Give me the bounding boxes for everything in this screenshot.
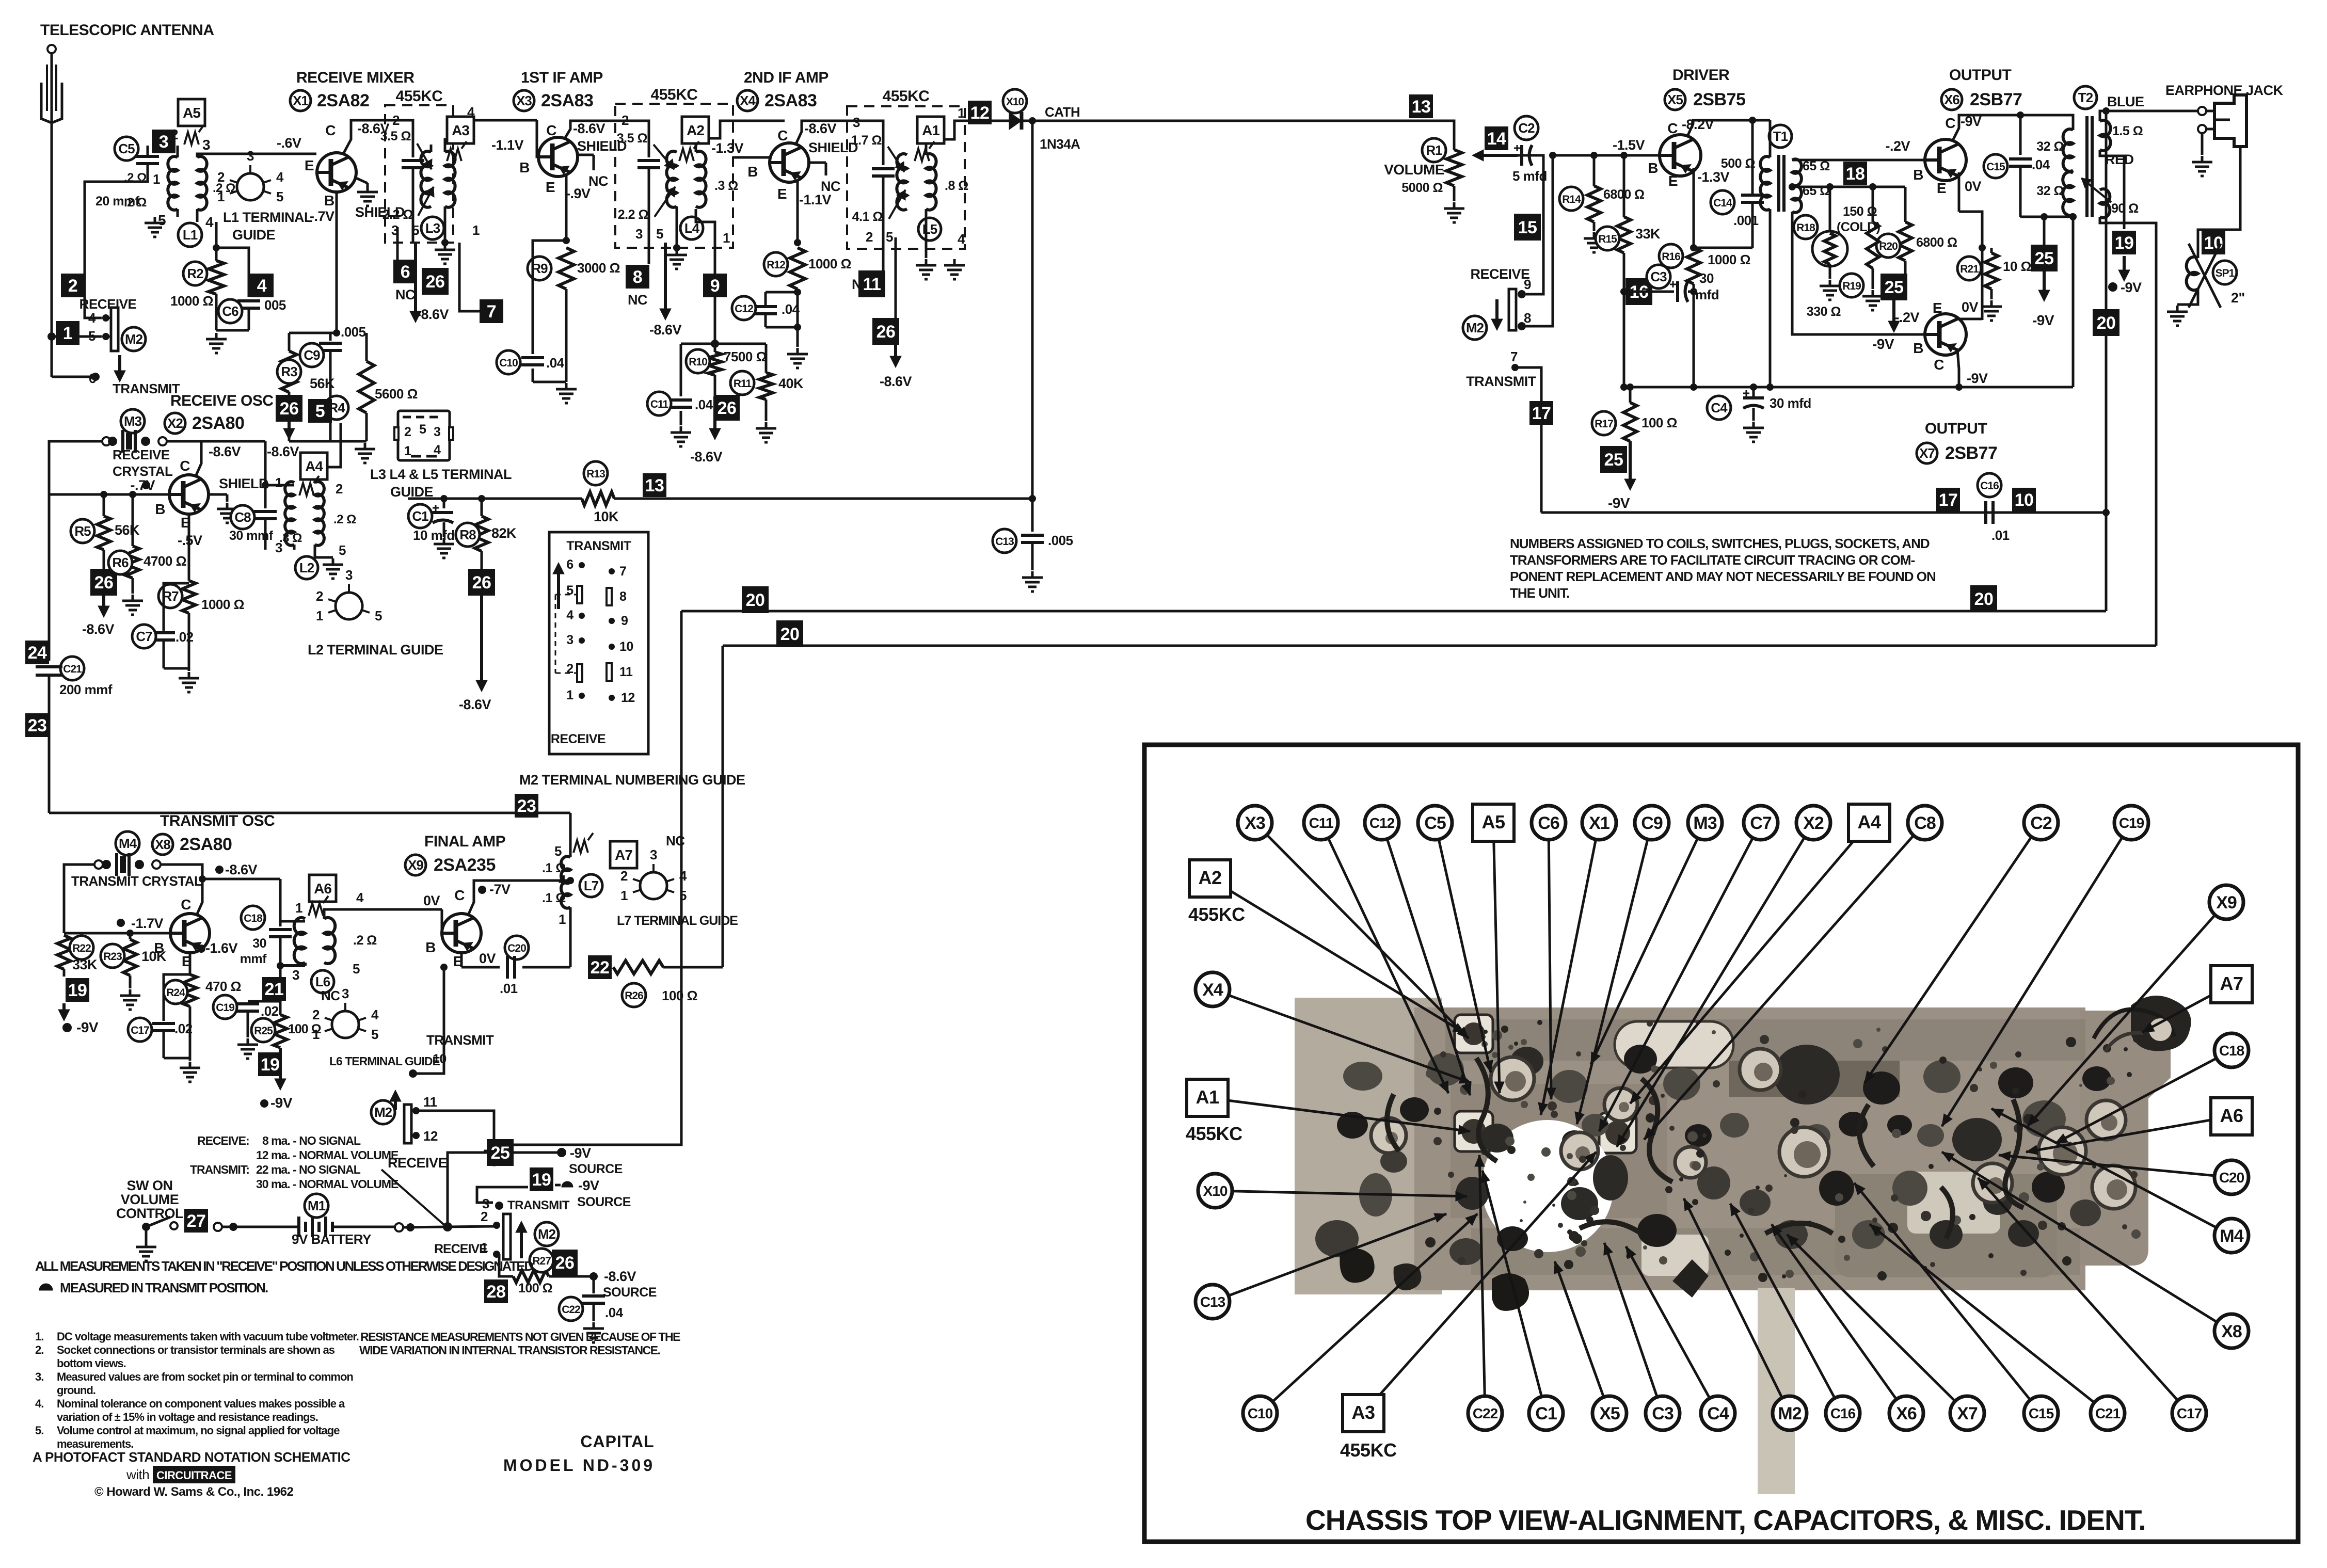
svg-text:X6: X6 — [1944, 92, 1959, 107]
svg-text:30 ma. - NORMAL VOLUME: 30 ma. - NORMAL VOLUME — [256, 1177, 399, 1191]
svg-text:C2: C2 — [1518, 120, 1535, 136]
svg-text:2SA83: 2SA83 — [541, 91, 593, 110]
svg-text:-.2V: -.2V — [1894, 310, 1919, 325]
svg-text:X4: X4 — [1202, 980, 1223, 1000]
svg-text:L2: L2 — [299, 560, 314, 575]
svg-text:-.6V: -.6V — [277, 135, 301, 151]
svg-text:-8.6V: -8.6V — [82, 621, 115, 637]
svg-text:C15: C15 — [2029, 1405, 2054, 1421]
svg-text:5: 5 — [276, 189, 283, 204]
svg-text:B: B — [1648, 160, 1658, 176]
svg-text:21: 21 — [265, 980, 284, 999]
svg-text:32 Ω: 32 Ω — [2036, 139, 2064, 154]
svg-text:-8.6V: -8.6V — [209, 444, 241, 459]
svg-text:10: 10 — [2015, 490, 2034, 510]
svg-text:-1.5V: -1.5V — [1613, 137, 1645, 153]
svg-text:100 Ω: 100 Ω — [662, 988, 697, 1003]
svg-text:3: 3 — [853, 115, 860, 130]
svg-text:A3: A3 — [1351, 1402, 1375, 1423]
svg-text:1.7 Ω: 1.7 Ω — [851, 133, 882, 148]
svg-text:Volume control at maximum, no: Volume control at maximum, no signal app… — [57, 1424, 340, 1437]
svg-text:6: 6 — [401, 262, 410, 282]
svg-text:-1.6V: -1.6V — [205, 940, 238, 956]
svg-text:10K: 10K — [594, 509, 619, 524]
svg-text:20: 20 — [1974, 589, 1994, 609]
svg-text:R12: R12 — [767, 259, 785, 271]
svg-text:1: 1 — [559, 911, 566, 927]
svg-text:3: 3 — [292, 967, 299, 983]
svg-text:1: 1 — [958, 105, 965, 121]
svg-text:R5: R5 — [74, 523, 91, 539]
svg-text:DRIVER: DRIVER — [1672, 67, 1730, 84]
svg-text:L1: L1 — [183, 227, 198, 243]
svg-text:GUIDE: GUIDE — [232, 227, 275, 243]
svg-text:C10: C10 — [1248, 1405, 1273, 1421]
svg-text:CIRCUITRACE: CIRCUITRACE — [156, 1469, 232, 1482]
svg-text:WIDE VARIATION IN INTERNAL TRA: WIDE VARIATION IN INTERNAL TRANSISTOR RE… — [359, 1343, 660, 1357]
svg-text:M2: M2 — [1466, 320, 1484, 335]
svg-text:.02: .02 — [176, 629, 194, 645]
svg-text:2ND IF AMP: 2ND IF AMP — [744, 69, 828, 86]
svg-text:10: 10 — [619, 639, 633, 654]
svg-text:C5: C5 — [118, 141, 135, 156]
svg-text:TRANSMIT: TRANSMIT — [566, 539, 631, 553]
svg-text:455KC: 455KC — [1186, 1123, 1242, 1144]
svg-text:19: 19 — [261, 1055, 280, 1075]
svg-text:1: 1 — [620, 888, 628, 903]
svg-text:E: E — [1937, 180, 1946, 196]
svg-text:R3: R3 — [281, 364, 297, 379]
svg-text:L3 L4 & L5 TERMINAL: L3 L4 & L5 TERMINAL — [370, 467, 512, 482]
svg-text:.3 Ω: .3 Ω — [714, 179, 738, 193]
svg-text:3: 3 — [202, 137, 210, 153]
svg-text:-8.6V: -8.6V — [804, 121, 837, 136]
svg-text:T2: T2 — [2078, 90, 2093, 105]
svg-text:C: C — [777, 127, 788, 143]
svg-text:NC: NC — [666, 833, 685, 849]
svg-text:1ST IF AMP: 1ST IF AMP — [521, 69, 603, 86]
svg-text:DC voltage measurements taken: DC voltage measurements taken with vacuu… — [57, 1330, 359, 1343]
svg-text:R20: R20 — [1879, 241, 1898, 252]
svg-text:30 mmf: 30 mmf — [229, 529, 274, 543]
svg-text:M4: M4 — [2220, 1226, 2243, 1246]
svg-text:8: 8 — [619, 589, 627, 604]
svg-text:X10: X10 — [1006, 96, 1024, 108]
svg-text:9: 9 — [710, 276, 720, 296]
svg-text:CRYSTAL: CRYSTAL — [113, 463, 173, 479]
svg-text:100 Ω: 100 Ω — [1641, 415, 1677, 430]
svg-text:5 mfd: 5 mfd — [1512, 168, 1547, 184]
svg-text:A2: A2 — [687, 122, 704, 138]
svg-text:6800 Ω: 6800 Ω — [1916, 235, 1957, 250]
svg-text:Socket connections or transist: Socket connections or transistor termina… — [57, 1343, 335, 1356]
svg-text:M2: M2 — [125, 331, 143, 347]
svg-text:1: 1 — [404, 444, 411, 458]
svg-text:R23: R23 — [103, 951, 122, 963]
svg-text:.01: .01 — [500, 981, 518, 996]
svg-text:-9V: -9V — [1967, 371, 1988, 386]
svg-text:M1: M1 — [308, 1198, 326, 1213]
svg-text:2SB75: 2SB75 — [1693, 90, 1745, 109]
svg-text:2.: 2. — [35, 1343, 43, 1356]
svg-text:R14: R14 — [1562, 194, 1581, 205]
svg-text:-8.6V: -8.6V — [880, 374, 912, 389]
svg-text:1: 1 — [217, 189, 225, 204]
svg-text:PONENT REPLACEMENT AND MAY NOT: PONENT REPLACEMENT AND MAY NOT NECESSARI… — [1510, 569, 1936, 584]
svg-text:33K: 33K — [72, 957, 98, 972]
svg-text:C9: C9 — [1641, 813, 1663, 833]
svg-text:C: C — [1667, 120, 1678, 136]
svg-text:R6: R6 — [112, 555, 129, 570]
svg-text:-9V: -9V — [1872, 336, 1894, 352]
svg-text:C12: C12 — [1369, 815, 1395, 831]
svg-text:A1: A1 — [922, 122, 939, 138]
svg-text:A4: A4 — [1857, 811, 1880, 833]
svg-text:TRANSFORMERS ARE TO FACILITATE: TRANSFORMERS ARE TO FACILITATE CIRCUIT T… — [1510, 552, 1915, 568]
svg-text:8: 8 — [1524, 310, 1531, 326]
svg-text:3000 Ω: 3000 Ω — [577, 260, 620, 276]
svg-text:X5: X5 — [1667, 92, 1683, 107]
svg-text:VOLUME: VOLUME — [1384, 162, 1444, 178]
svg-text:T1: T1 — [1773, 129, 1788, 144]
svg-text:C20: C20 — [2219, 1170, 2244, 1186]
svg-text:MODEL ND-309: MODEL ND-309 — [503, 1456, 655, 1475]
svg-text:3: 3 — [650, 847, 657, 862]
svg-text:C6: C6 — [222, 303, 238, 319]
svg-text:3: 3 — [342, 986, 349, 1001]
svg-text:RECEIVE: RECEIVE — [79, 296, 137, 312]
svg-text:26: 26 — [280, 399, 299, 419]
svg-text:-8.6V: -8.6V — [459, 697, 491, 712]
svg-text:9: 9 — [1524, 277, 1531, 292]
svg-text:X9: X9 — [2216, 893, 2237, 913]
svg-text:L3: L3 — [425, 220, 440, 236]
svg-text:14: 14 — [1487, 129, 1506, 149]
svg-text:CAPITAL: CAPITAL — [580, 1432, 654, 1451]
svg-text:5: 5 — [353, 961, 360, 977]
svg-text:9: 9 — [621, 614, 628, 628]
svg-text:C1: C1 — [1535, 1404, 1557, 1423]
svg-text:18: 18 — [1846, 164, 1865, 184]
svg-text:2: 2 — [312, 1007, 320, 1022]
svg-text:C21: C21 — [63, 663, 82, 675]
svg-text:-.2V: -.2V — [1885, 138, 1910, 154]
svg-text:C18: C18 — [2219, 1043, 2244, 1059]
svg-text:-9V: -9V — [570, 1145, 591, 1161]
svg-text:25: 25 — [491, 1143, 510, 1163]
svg-text:RECEIVE MIXER: RECEIVE MIXER — [296, 69, 415, 86]
svg-text:X7: X7 — [1957, 1404, 1978, 1423]
svg-text:22: 22 — [591, 958, 610, 978]
svg-text:3.: 3. — [35, 1370, 43, 1383]
svg-text:4.1 Ω: 4.1 Ω — [852, 210, 883, 224]
svg-text:22 ma. - NO SIGNAL: 22 ma. - NO SIGNAL — [256, 1163, 361, 1176]
svg-text:C16: C16 — [1830, 1405, 1856, 1421]
svg-text:mfd: mfd — [1695, 287, 1719, 302]
svg-text:C3: C3 — [1652, 1404, 1673, 1423]
svg-text:7: 7 — [1510, 349, 1518, 364]
svg-text:© Howard W. Sams & Co., Inc. 1: © Howard W. Sams & Co., Inc. 1962 — [94, 1485, 293, 1499]
svg-text:ground.: ground. — [57, 1384, 95, 1397]
svg-text:C4: C4 — [1707, 1404, 1729, 1423]
svg-text:B: B — [1913, 340, 1923, 356]
svg-text:-8.6V: -8.6V — [649, 322, 682, 338]
svg-text:2SA82: 2SA82 — [317, 91, 369, 110]
svg-text:-1.3V: -1.3V — [711, 140, 744, 156]
svg-text:B: B — [155, 501, 165, 517]
svg-text:12 ma. - NORMAL VOLUME: 12 ma. - NORMAL VOLUME — [256, 1148, 399, 1162]
svg-text:11: 11 — [423, 1094, 437, 1110]
svg-text:X8: X8 — [155, 837, 170, 852]
svg-text:OUTPUT: OUTPUT — [1925, 420, 1987, 437]
svg-text:82K: 82K — [491, 525, 517, 541]
svg-text:1: 1 — [723, 230, 730, 246]
svg-text:E: E — [305, 157, 314, 173]
svg-text:27: 27 — [187, 1211, 206, 1231]
svg-text:TRANSMIT: TRANSMIT — [1466, 374, 1536, 389]
svg-text:25: 25 — [1604, 450, 1623, 470]
svg-text:.04: .04 — [695, 397, 713, 412]
svg-text:C9: C9 — [304, 347, 320, 363]
svg-text:4: 4 — [356, 890, 364, 905]
svg-text:R17: R17 — [1595, 418, 1613, 430]
svg-text:M2: M2 — [374, 1105, 392, 1120]
svg-text:C17: C17 — [2177, 1405, 2202, 1421]
svg-text:15: 15 — [1518, 218, 1537, 237]
svg-text:100 Ω: 100 Ω — [518, 1281, 553, 1295]
svg-text:500 Ω: 500 Ω — [1721, 156, 1756, 171]
svg-text:.005: .005 — [341, 324, 366, 340]
svg-text:R1: R1 — [1426, 142, 1442, 158]
svg-text:CHASSIS TOP VIEW-ALIGNMENT, CA: CHASSIS TOP VIEW-ALIGNMENT, CAPACITORS, … — [1305, 1504, 2146, 1536]
svg-text:2: 2 — [566, 662, 573, 676]
svg-text:0V: 0V — [1965, 179, 1982, 194]
svg-text:RECEIVE: RECEIVE — [1470, 266, 1529, 282]
svg-text:-9V: -9V — [76, 1019, 99, 1035]
svg-text:8: 8 — [633, 267, 642, 287]
svg-text:NC: NC — [321, 988, 340, 1003]
svg-text:A6: A6 — [2220, 1105, 2243, 1126]
svg-text:A PHOTOFACT STANDARD NOTATION: A PHOTOFACT STANDARD NOTATION SCHEMATIC — [33, 1449, 350, 1465]
svg-text:X1: X1 — [293, 93, 308, 108]
svg-text:C7: C7 — [136, 629, 152, 644]
svg-text:.3 Ω: .3 Ω — [279, 531, 302, 545]
svg-text:200 mmf: 200 mmf — [59, 682, 113, 697]
svg-text:10: 10 — [2204, 233, 2223, 253]
svg-text:RECEIVE OSC: RECEIVE OSC — [170, 392, 274, 409]
svg-text:26: 26 — [555, 1253, 575, 1273]
svg-text:-7V: -7V — [489, 882, 511, 897]
svg-text:NC: NC — [395, 287, 415, 302]
svg-text:-9V: -9V — [1608, 495, 1630, 511]
svg-text:5: 5 — [88, 328, 95, 344]
svg-text:1000 Ω: 1000 Ω — [170, 293, 213, 309]
svg-text:.04: .04 — [546, 355, 565, 371]
svg-text:1: 1 — [295, 900, 302, 916]
svg-text:C: C — [454, 887, 465, 903]
svg-text:mmf: mmf — [240, 952, 267, 966]
svg-text:.04: .04 — [605, 1305, 624, 1320]
svg-text:330 Ω: 330 Ω — [1807, 305, 1841, 319]
svg-text:17: 17 — [1532, 404, 1551, 423]
svg-text:5: 5 — [375, 608, 382, 623]
svg-text:3: 3 — [345, 567, 353, 583]
svg-text:2: 2 — [620, 868, 628, 884]
svg-text:1: 1 — [63, 324, 72, 343]
svg-text:L1 TERMINAL: L1 TERMINAL — [223, 210, 312, 225]
svg-text:L5: L5 — [922, 221, 937, 237]
svg-text:4.: 4. — [35, 1397, 43, 1410]
svg-text:C8: C8 — [234, 509, 251, 525]
svg-text:2SA235: 2SA235 — [434, 855, 496, 875]
svg-text:R13: R13 — [586, 468, 605, 480]
svg-text:A5: A5 — [1481, 811, 1505, 833]
svg-text:1000 Ω: 1000 Ω — [808, 256, 851, 271]
svg-text:12: 12 — [423, 1128, 438, 1144]
svg-text:23: 23 — [28, 716, 47, 735]
svg-text:2: 2 — [866, 229, 873, 245]
svg-text:E: E — [777, 186, 787, 202]
svg-text:5: 5 — [679, 888, 687, 903]
svg-text:MEASURED IN TRANSMIT POSITION.: MEASURED IN TRANSMIT POSITION. — [60, 1280, 268, 1295]
svg-text:C1: C1 — [412, 508, 428, 524]
svg-text:4700 Ω: 4700 Ω — [144, 553, 186, 569]
svg-text:.2 Ω: .2 Ω — [353, 933, 377, 948]
svg-text:RECEIVE: RECEIVE — [434, 1242, 487, 1256]
svg-text:TRANSMIT OSC: TRANSMIT OSC — [160, 812, 275, 829]
svg-text:-8.6V: -8.6V — [573, 121, 605, 136]
svg-text:C10: C10 — [499, 357, 518, 369]
svg-text:2: 2 — [336, 481, 343, 497]
svg-text:7: 7 — [487, 302, 496, 322]
svg-text:3: 3 — [434, 425, 440, 439]
svg-text:A3: A3 — [452, 122, 469, 138]
svg-text:TRANSMIT CRYSTAL: TRANSMIT CRYSTAL — [71, 873, 202, 889]
svg-text:26: 26 — [472, 573, 491, 593]
svg-text:FINAL AMP: FINAL AMP — [424, 833, 505, 850]
svg-text:2: 2 — [170, 126, 178, 142]
svg-text:32 Ω: 32 Ω — [2036, 184, 2064, 198]
svg-text:CONTROL: CONTROL — [116, 1206, 183, 1221]
svg-text:-1.7V: -1.7V — [131, 916, 164, 931]
svg-text:-9V: -9V — [270, 1095, 293, 1111]
svg-text:2: 2 — [316, 588, 323, 604]
svg-text:26: 26 — [426, 272, 445, 292]
svg-text:.005: .005 — [1048, 533, 1073, 548]
svg-text:3.5 Ω: 3.5 Ω — [617, 131, 648, 146]
svg-text:12: 12 — [621, 691, 635, 705]
svg-text:2: 2 — [217, 169, 225, 185]
svg-text:C22: C22 — [562, 1304, 580, 1316]
svg-text:R19: R19 — [1842, 280, 1861, 292]
svg-text:bottom views.: bottom views. — [57, 1357, 126, 1370]
svg-text:30: 30 — [1699, 270, 1714, 286]
svg-text:R11: R11 — [734, 378, 752, 390]
svg-text:005: 005 — [264, 297, 286, 313]
svg-text:.8 Ω: .8 Ω — [945, 179, 968, 193]
svg-text:R16: R16 — [1662, 251, 1680, 263]
svg-text:C4: C4 — [1711, 400, 1728, 415]
svg-text:L7 TERMINAL GUIDE: L7 TERMINAL GUIDE — [617, 914, 738, 928]
svg-text:455KC: 455KC — [651, 86, 698, 103]
svg-text:30 mfd: 30 mfd — [1770, 395, 1811, 411]
svg-text:20: 20 — [780, 625, 800, 644]
svg-text:-8.6V: -8.6V — [417, 307, 449, 322]
svg-text:C17: C17 — [131, 1025, 149, 1036]
svg-text:X10: X10 — [1203, 1183, 1228, 1199]
svg-text:A6: A6 — [314, 881, 331, 897]
svg-text:1N34A: 1N34A — [1040, 136, 1080, 152]
svg-text:4: 4 — [958, 231, 965, 247]
svg-text:28: 28 — [487, 1282, 506, 1302]
svg-text:THE UNIT.: THE UNIT. — [1510, 585, 1569, 601]
svg-text:C: C — [1934, 357, 1944, 373]
svg-text:1.: 1. — [35, 1330, 43, 1343]
svg-text:2: 2 — [68, 276, 77, 296]
svg-text:-9V: -9V — [578, 1178, 599, 1193]
svg-text:R24: R24 — [166, 987, 185, 999]
svg-text:M2: M2 — [1778, 1404, 1801, 1423]
svg-text:M3: M3 — [124, 413, 142, 429]
svg-text:X2: X2 — [1803, 813, 1824, 833]
svg-text:VOLUME: VOLUME — [121, 1192, 179, 1207]
svg-text:C: C — [546, 122, 556, 138]
svg-text:with: with — [126, 1467, 149, 1482]
svg-text:4: 4 — [679, 868, 687, 884]
svg-text:90 Ω: 90 Ω — [2111, 201, 2139, 216]
svg-text:RECEIVE:: RECEIVE: — [197, 1134, 249, 1147]
svg-text:13: 13 — [1412, 97, 1431, 117]
svg-text:1.5 Ω: 1.5 Ω — [2112, 124, 2143, 138]
svg-text:C19: C19 — [2119, 815, 2144, 831]
svg-text:.02: .02 — [261, 1003, 279, 1019]
svg-text:C22: C22 — [1473, 1405, 1498, 1421]
svg-text:A7: A7 — [615, 847, 632, 863]
svg-text:E: E — [1933, 300, 1942, 316]
svg-text:E: E — [1668, 173, 1678, 189]
svg-text:SOURCE: SOURCE — [569, 1162, 623, 1176]
svg-text:1000 Ω: 1000 Ω — [201, 597, 244, 612]
svg-text:-.7V: -.7V — [310, 209, 334, 224]
svg-text:.04: .04 — [782, 301, 800, 317]
svg-text:L7: L7 — [584, 878, 599, 893]
svg-text:C8: C8 — [1914, 813, 1936, 833]
svg-text:R22: R22 — [72, 942, 91, 954]
svg-text:C: C — [180, 458, 190, 474]
svg-text:CATH: CATH — [1045, 104, 1080, 120]
svg-text:26: 26 — [718, 398, 737, 418]
svg-text:-8.6V: -8.6V — [604, 1269, 636, 1284]
svg-text:4: 4 — [371, 1007, 379, 1022]
svg-text:455KC: 455KC — [396, 88, 443, 105]
svg-text:R15: R15 — [1598, 233, 1617, 245]
svg-text:X7: X7 — [1919, 445, 1935, 461]
svg-text:2SA80: 2SA80 — [192, 413, 244, 433]
svg-text:X3: X3 — [516, 93, 532, 108]
svg-text:1000 Ω: 1000 Ω — [1708, 252, 1750, 267]
svg-text:5: 5 — [886, 229, 893, 245]
svg-text:-1.1V: -1.1V — [799, 192, 832, 207]
svg-text:2": 2" — [2231, 290, 2245, 306]
svg-text:C3: C3 — [1650, 269, 1667, 284]
svg-text:B: B — [1913, 167, 1923, 183]
svg-text:X2: X2 — [167, 415, 183, 431]
svg-text:25: 25 — [1885, 278, 1904, 297]
svg-text:4: 4 — [467, 104, 475, 120]
svg-text:4: 4 — [566, 608, 573, 622]
svg-text:10K: 10K — [141, 949, 167, 964]
svg-text:TRANSMIT:: TRANSMIT: — [190, 1163, 249, 1176]
